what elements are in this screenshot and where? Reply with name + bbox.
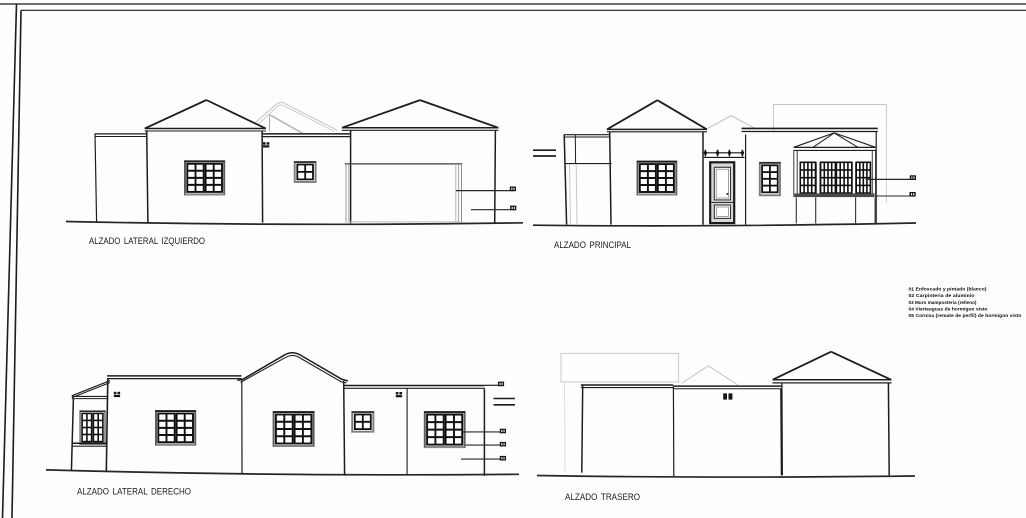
svg-text:ALZADO PRINCIPAL: ALZADO PRINCIPAL (554, 240, 631, 250)
svg-text:05 Cornisa (remate de perfil): 05 Cornisa (remate de perfil) de hormigo… (909, 313, 1022, 319)
svg-text:02 Carpinteria de aluminio: 02 Carpinteria de aluminio (909, 293, 975, 299)
svg-text:01 Enfoscado y pintado (blanco: 01 Enfoscado y pintado (blanco) (909, 287, 987, 293)
svg-text:04 Vierteaguas de hormigon vis: 04 Vierteaguas de hormigon visto (909, 306, 988, 312)
svg-text:03 Muro mamposteria (relleno): 03 Muro mamposteria (relleno) (909, 300, 977, 306)
svg-text:ALZADO TRASERO: ALZADO TRASERO (565, 492, 640, 502)
svg-text:ALZADO LATERAL IZQUIERDO: ALZADO LATERAL IZQUIERDO (89, 236, 205, 246)
svg-text:ALZADO LATERAL DERECHO: ALZADO LATERAL DERECHO (77, 487, 191, 497)
